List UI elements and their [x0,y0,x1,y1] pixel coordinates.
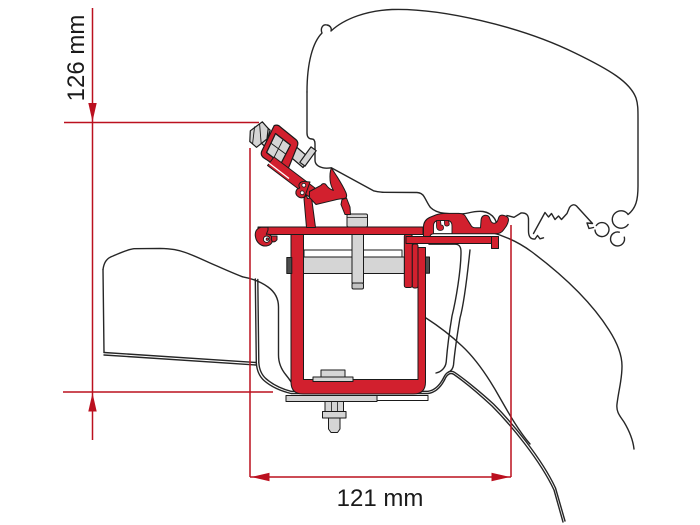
svg-text:121 mm: 121 mm [337,485,424,512]
svg-text:126 mm: 126 mm [63,15,90,102]
